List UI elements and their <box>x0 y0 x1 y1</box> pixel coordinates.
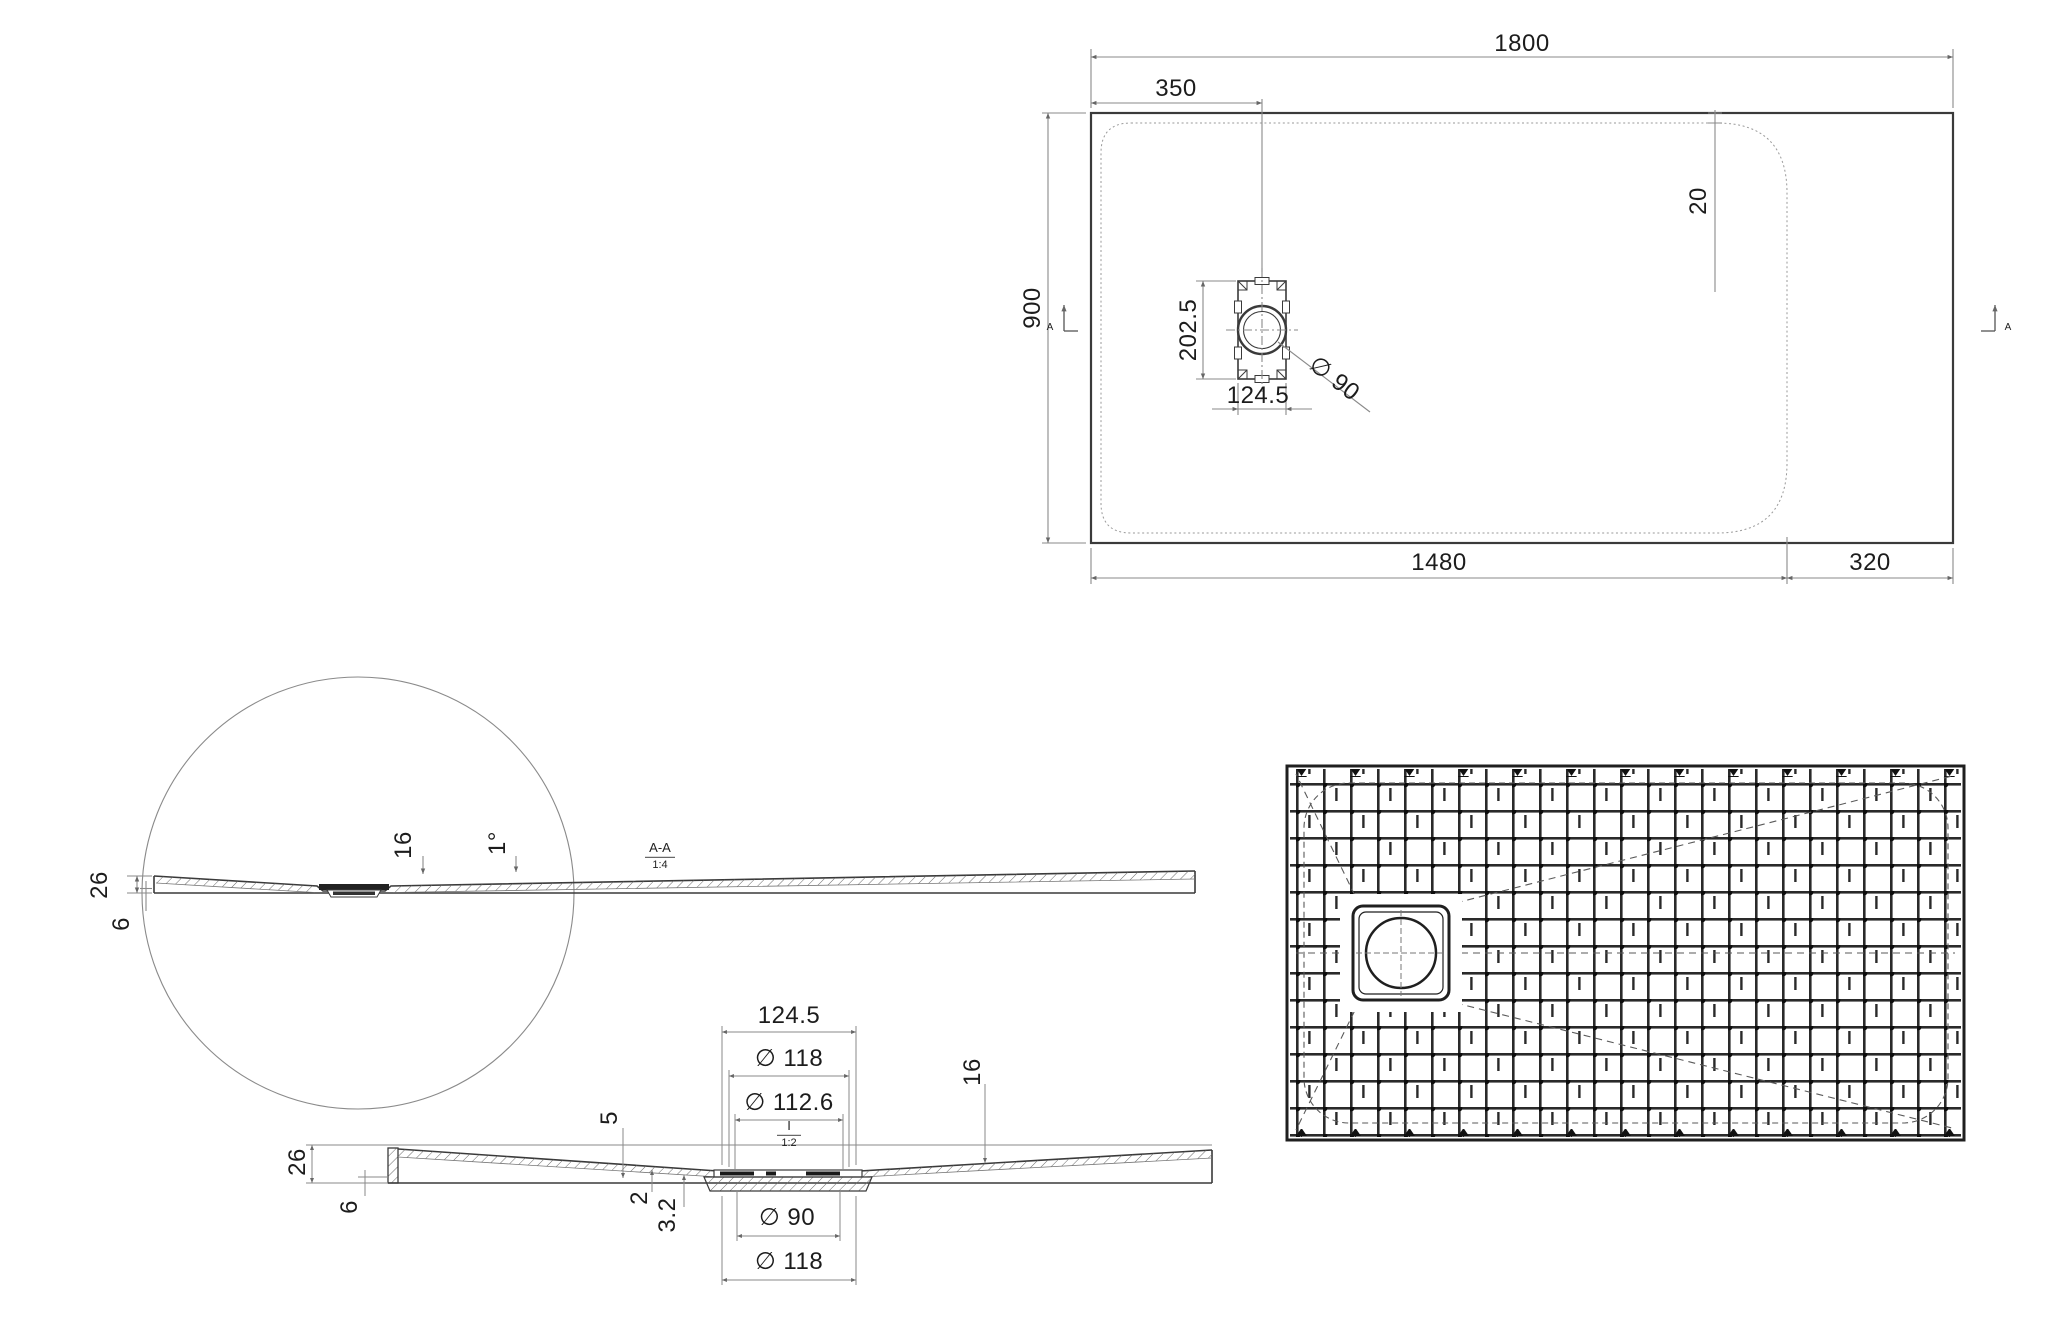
detail-dim-drain-diameter: ∅ 90 <box>759 1206 815 1230</box>
section-dim-rim-height: 6 <box>110 917 134 931</box>
section-name: A-A <box>649 841 671 855</box>
section-marker-left-label: A <box>1047 323 1054 333</box>
drawing-linework <box>0 0 2048 1338</box>
plan-dim-total-height: 900 <box>1021 287 1045 329</box>
plan-dim-drain-offset: 350 <box>1155 77 1197 101</box>
detail-dim-bottom-diameter: ∅ 118 <box>755 1250 823 1274</box>
detail-scale: 1:2 <box>781 1137 796 1149</box>
section-view-label: A-A 1:4 <box>645 841 675 871</box>
detail-dim-recess: 5 <box>598 1111 622 1125</box>
detail-dim-step2: 3.2 <box>656 1198 680 1233</box>
plan-dim-total-width: 1800 <box>1494 32 1549 56</box>
plan-dim-drain-height: 202.5 <box>1177 299 1201 362</box>
plan-dim-bottom-left: 1480 <box>1411 551 1466 575</box>
section-dim-edge-height: 26 <box>88 871 112 899</box>
section-scale: 1:4 <box>652 859 667 871</box>
section-dim-thickness: 16 <box>392 831 416 859</box>
detail-name: I <box>787 1119 791 1133</box>
plan-dim-drain-width: 124.5 <box>1227 384 1290 408</box>
fraction-bar <box>645 857 675 858</box>
detail-dim-rim-height: 6 <box>338 1200 362 1214</box>
detail-dim-inner-diameter: ∅ 112.6 <box>744 1091 833 1115</box>
detail-dim-outer-diameter: ∅ 118 <box>755 1047 823 1071</box>
fraction-bar <box>777 1135 801 1136</box>
detail-dim-thickness: 16 <box>961 1058 985 1086</box>
section-marker-right-label: A <box>2005 323 2012 333</box>
detail-view-label: I 1:2 <box>777 1119 801 1149</box>
section-dim-slope: 1° <box>486 831 510 855</box>
detail-dim-edge-height: 26 <box>286 1148 310 1176</box>
plan-dim-corner-radius: 20 <box>1687 187 1711 215</box>
detail-dim-flange-width: 124.5 <box>758 1004 821 1028</box>
detail-dim-step: 2 <box>628 1191 652 1205</box>
technical-drawing-sheet: 1800 350 900 20 202.5 124.5 ∅ 90 1480 32… <box>0 0 2048 1338</box>
plan-dim-bottom-right: 320 <box>1849 551 1891 575</box>
